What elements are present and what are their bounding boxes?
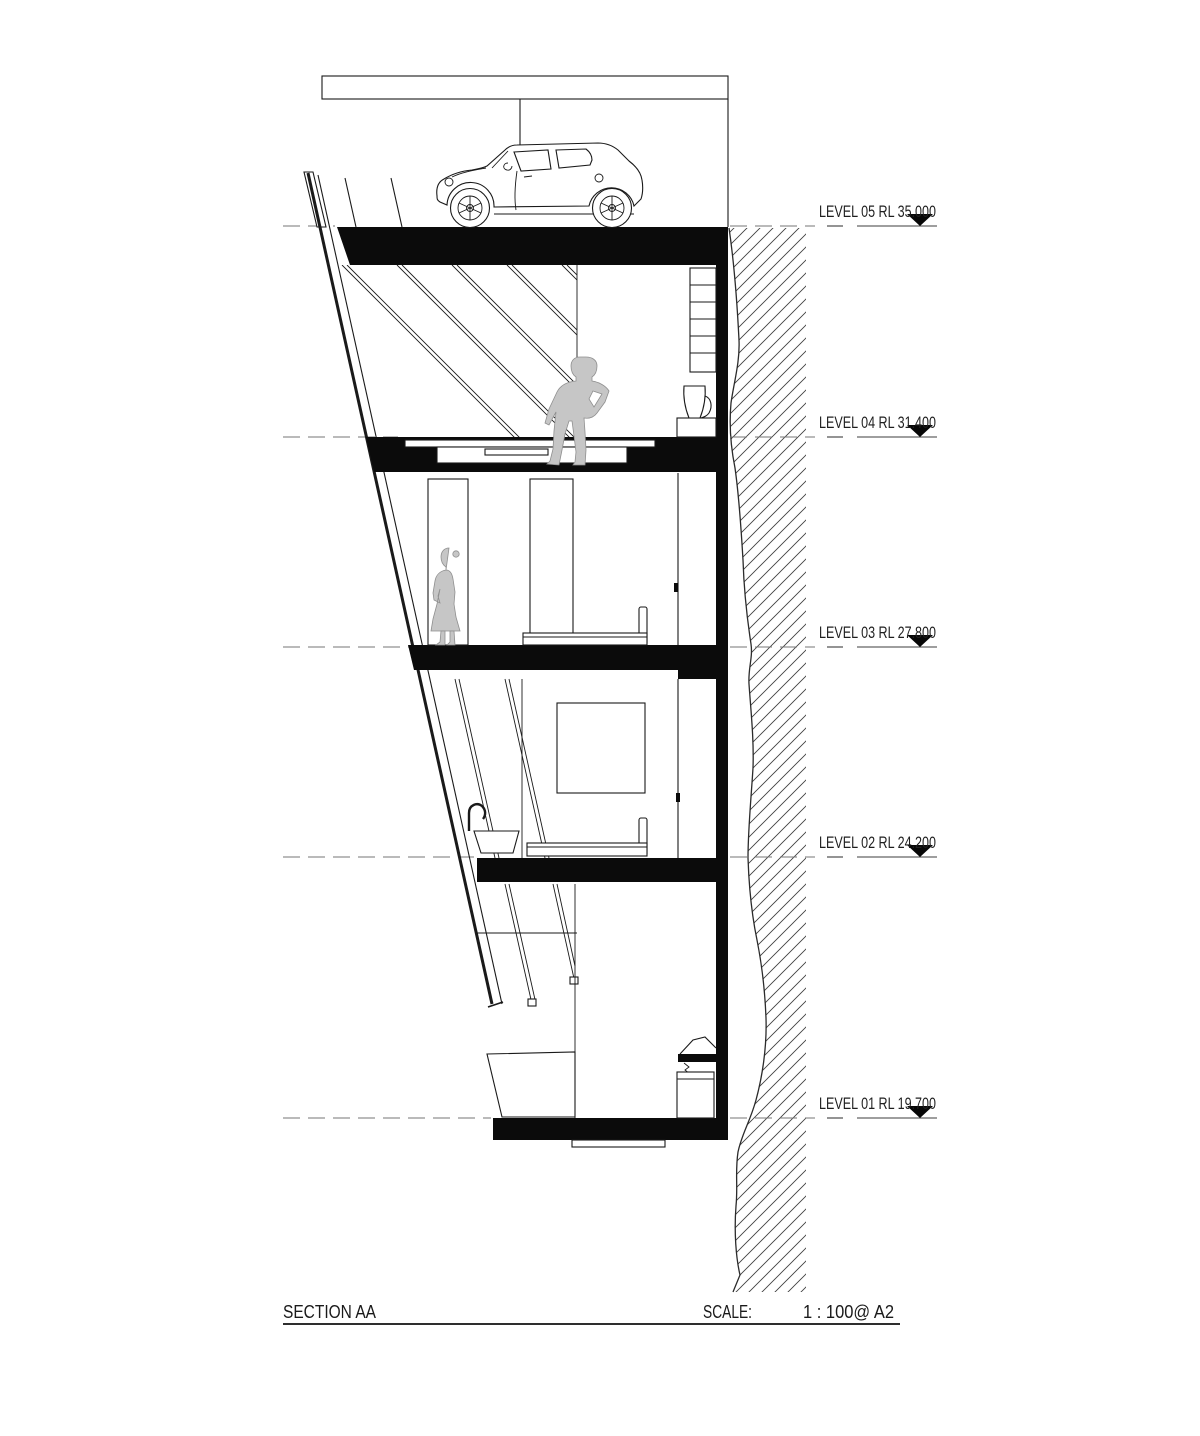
bed-platform bbox=[527, 843, 647, 856]
wardrobe-panel-right bbox=[530, 479, 573, 645]
rock-hatch-fill bbox=[729, 228, 806, 1292]
desk-top bbox=[678, 1054, 716, 1062]
mullion-end-cap bbox=[570, 977, 578, 984]
door-handle-level-02 bbox=[676, 793, 680, 802]
level-04-sunken-deck bbox=[405, 440, 655, 463]
mullion-end-cap bbox=[528, 999, 536, 1006]
recess-step bbox=[485, 449, 548, 455]
bed-level-02 bbox=[527, 818, 647, 856]
level-marker-02: LEVEL 02 RL 24.200 bbox=[819, 834, 937, 857]
toilet-plinth bbox=[677, 418, 716, 437]
basin-and-faucet bbox=[469, 804, 519, 853]
level-03-label: LEVEL 03 RL 27.800 bbox=[819, 624, 936, 642]
deck-strip bbox=[405, 440, 655, 447]
shelf-ladder bbox=[690, 268, 716, 372]
level-03-slab bbox=[408, 645, 728, 670]
toilet-bowl bbox=[684, 386, 706, 418]
rock-earth bbox=[729, 228, 806, 1292]
level-04-label: LEVEL 04 RL 31.400 bbox=[819, 414, 936, 432]
desk-lamp bbox=[680, 1037, 716, 1054]
level-02-label: LEVEL 02 RL 24.200 bbox=[819, 834, 936, 852]
scale-value: 1 : 100@ A2 bbox=[803, 1302, 894, 1322]
level-01-label: LEVEL 01 RL 19.700 bbox=[819, 1095, 936, 1113]
scale-label: SCALE: bbox=[703, 1302, 752, 1322]
car-window-rear bbox=[556, 149, 592, 168]
picture-frame bbox=[557, 703, 645, 793]
level-05-slab bbox=[337, 227, 728, 265]
balustrade-stub-1 bbox=[345, 178, 356, 227]
stair-ramp-mass bbox=[487, 1052, 575, 1117]
level-01-interior bbox=[487, 884, 716, 1147]
level-03-interior bbox=[428, 473, 678, 645]
level-marker-03: LEVEL 03 RL 27.800 bbox=[819, 624, 937, 647]
level-marker-04: LEVEL 04 RL 31.400 bbox=[819, 414, 937, 437]
foundation-plinth bbox=[572, 1140, 665, 1147]
faucet bbox=[469, 804, 485, 831]
sloped-facade bbox=[304, 172, 503, 1007]
right-wall bbox=[716, 227, 728, 1140]
basin bbox=[474, 831, 519, 853]
level-03-door-head bbox=[678, 670, 716, 679]
facade-inner-edge bbox=[318, 175, 502, 1004]
toilet-fixture bbox=[677, 386, 716, 437]
section-drawing-sheet: LEVEL 05 RL 35.000 LEVEL 04 RL 31.400 LE… bbox=[0, 0, 1200, 1436]
bed-platform bbox=[523, 633, 647, 645]
level-01-slab bbox=[493, 1118, 727, 1140]
level-02-interior bbox=[469, 679, 680, 858]
level-02-slab bbox=[477, 858, 728, 882]
title-block: SECTION AA SCALE: 1 : 100@ A2 bbox=[283, 1302, 900, 1324]
hair-bun bbox=[453, 551, 459, 557]
balustrade-stub-2 bbox=[391, 178, 402, 227]
section-title: SECTION AA bbox=[283, 1302, 376, 1322]
car-wheel-front bbox=[451, 189, 490, 228]
car-wheel-rear bbox=[593, 189, 632, 228]
car-icon bbox=[437, 143, 643, 228]
level-marker-05: LEVEL 05 RL 35.000 bbox=[819, 203, 937, 226]
desk-unit bbox=[677, 1037, 716, 1118]
level-05-label: LEVEL 05 RL 35.000 bbox=[819, 203, 936, 221]
door-handle-level-03 bbox=[674, 583, 678, 592]
level-marker-01: LEVEL 01 RL 19.700 bbox=[819, 1095, 937, 1118]
section-aa-drawing: LEVEL 05 RL 35.000 LEVEL 04 RL 31.400 LE… bbox=[0, 0, 1200, 1436]
car-window-front bbox=[514, 150, 551, 171]
canopy-beam bbox=[322, 76, 728, 99]
